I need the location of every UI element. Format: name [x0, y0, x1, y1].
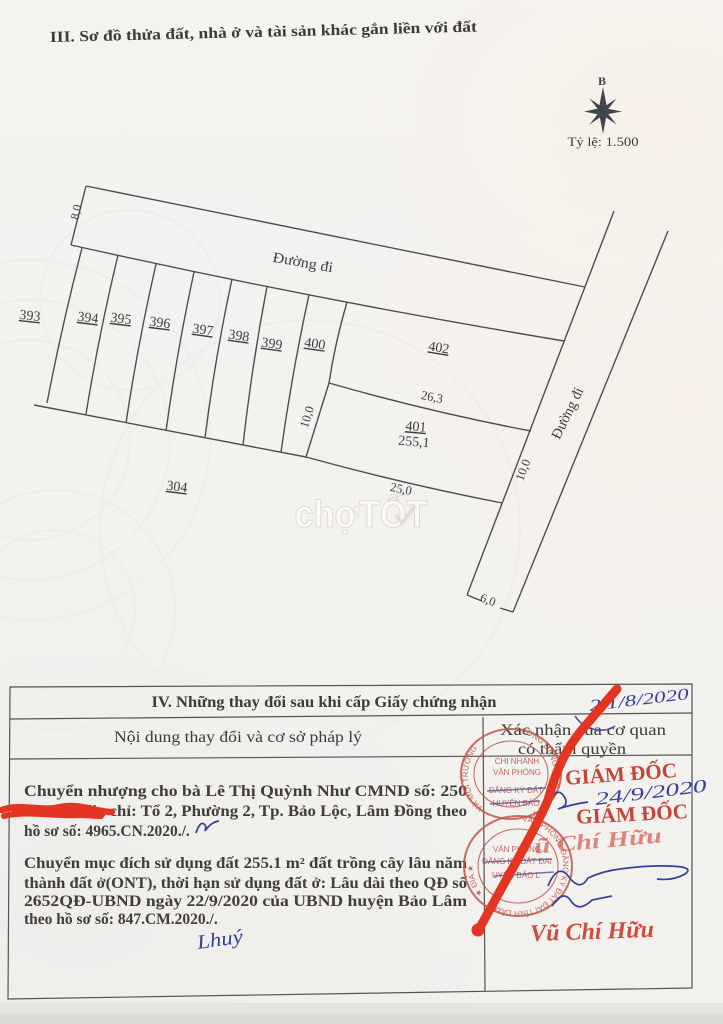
svg-text:Đường đi: Đường đi [271, 250, 334, 276]
svg-text:26,3: 26,3 [420, 388, 444, 406]
svg-text:Lhuý: Lhuý [194, 926, 244, 954]
svg-text:255,1: 255,1 [398, 434, 431, 452]
svg-text:III. Sơ đồ thửa đất, nhà ở và: III. Sơ đồ thửa đất, nhà ở và tài sản kh… [50, 19, 478, 46]
svg-text:10,0: 10,0 [513, 457, 534, 482]
svg-text:401: 401 [405, 419, 427, 436]
svg-text:thành đất ở(ONT), thời hạn sử: thành đất ở(ONT), thời hạn sử dụng đất ở… [24, 875, 467, 892]
svg-text:Chuyển mục đích sử dụng đất 2: Chuyển mục đích sử dụng đất 255.1 m² đất… [24, 855, 467, 872]
svg-text:398: 398 [227, 328, 250, 346]
svg-text:393: 393 [19, 308, 41, 325]
svg-text:395: 395 [109, 311, 132, 328]
svg-text:394: 394 [76, 310, 99, 327]
svg-text:VĂN PHÒNG: VĂN PHÒNG [493, 768, 541, 777]
svg-text:Nội dung thay đổi và cơ sở phá: Nội dung thay đổi và cơ sở pháp lý [114, 729, 362, 746]
svg-text:396: 396 [148, 315, 171, 332]
svg-text:Vũ Chí Hữu: Vũ Chí Hữu [530, 917, 655, 947]
svg-text:hồ sơ số: 4965.CN.2020./.: hồ sơ số: 4965.CN.2020./. [24, 823, 190, 840]
svg-text:397: 397 [191, 322, 214, 340]
svg-text:Chuyển nhượng cho bà Lê Thị Qu: Chuyển nhượng cho bà Lê Thị Quỳnh Như CM… [24, 783, 467, 800]
svg-text:6,0: 6,0 [478, 591, 498, 610]
svg-text:Tỷ lệ: 1.500: Tỷ lệ: 1.500 [568, 134, 639, 149]
svg-text:Đường đi: Đường đi [549, 385, 588, 442]
svg-text:theo hồ sơ số: 847.CM.2020./.: theo hồ sơ số: 847.CM.2020./. [24, 911, 218, 928]
svg-text:CHI NHÁNH: CHI NHÁNH [495, 757, 540, 766]
svg-text:IV. Những thay đổi sau khi cấp: IV. Những thay đổi sau khi cấp Giấy chứn… [152, 694, 497, 711]
svg-text:B: B [598, 74, 606, 88]
svg-text:304: 304 [165, 479, 188, 496]
svg-text:8,0: 8,0 [67, 203, 84, 221]
svg-text:10,0: 10,0 [297, 404, 317, 429]
svg-text:399: 399 [260, 336, 283, 354]
svg-text:2652QĐ-UBND ngày 22/9/2020 của: 2652QĐ-UBND ngày 22/9/2020 của UBND huyệ… [24, 893, 467, 910]
svg-text:400: 400 [303, 336, 326, 354]
svg-text:402: 402 [427, 339, 450, 357]
